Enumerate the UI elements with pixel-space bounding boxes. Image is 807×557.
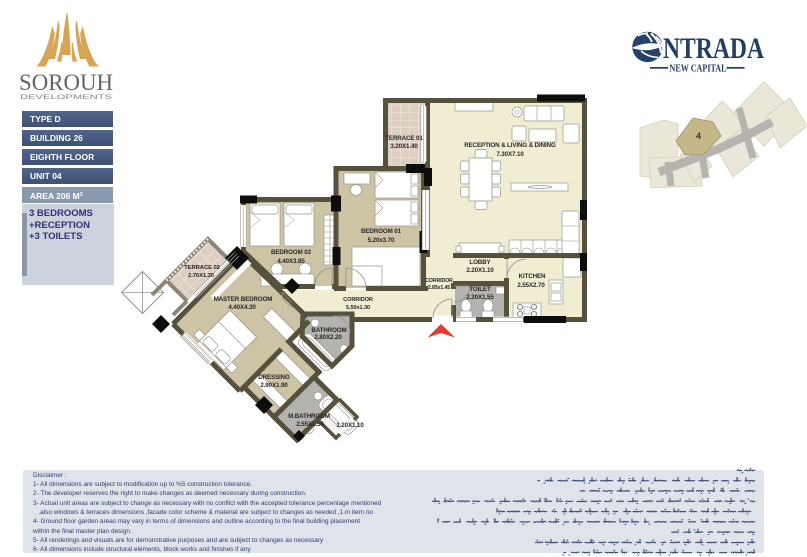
svg-text:TERRACE 01: TERRACE 01 — [385, 135, 423, 142]
svg-text:2.55X2.70: 2.55X2.70 — [517, 282, 545, 289]
svg-text:CORRIDOR: CORRIDOR — [425, 278, 453, 284]
svg-text:BATHROOM: BATHROOM — [311, 327, 346, 334]
svg-text:2.55X1.50: 2.55X1.50 — [296, 421, 324, 428]
svg-text:TOILET: TOILET — [469, 286, 491, 293]
svg-text:CORRIDOR: CORRIDOR — [343, 297, 373, 303]
svg-text:NEW CAPITAL: NEW CAPITAL — [670, 64, 727, 75]
svg-text:4.40X4.30: 4.40X4.30 — [228, 304, 256, 311]
svg-text:2.70X1.30: 2.70X1.30 — [188, 273, 215, 279]
svg-text:4.40X3.85: 4.40X3.85 — [277, 258, 305, 265]
svg-text:TERRACE 02: TERRACE 02 — [184, 265, 220, 271]
svg-text:RECEPTION & LIVING & DINING: RECEPTION & LIVING & DINING — [464, 142, 556, 149]
svg-text:LOBBY: LOBBY — [469, 259, 491, 266]
svg-text:NTRADA: NTRADA — [663, 32, 764, 65]
svg-text:2.20X1.10: 2.20X1.10 — [466, 267, 494, 274]
svg-text:7.30X7.10: 7.30X7.10 — [496, 151, 524, 158]
svg-text:BEDROOM 02: BEDROOM 02 — [271, 249, 312, 256]
svg-text:DRESSING: DRESSING — [258, 374, 290, 381]
svg-text:2.85x1.45: 2.85x1.45 — [428, 285, 450, 291]
svg-text:5.50x1.30: 5.50x1.30 — [346, 305, 370, 311]
svg-text:3.20X1.40: 3.20X1.40 — [390, 143, 418, 150]
svg-text:4: 4 — [696, 131, 701, 141]
svg-text:1.20X1.10: 1.20X1.10 — [336, 422, 364, 429]
svg-text:5.20x3.70: 5.20x3.70 — [368, 237, 395, 244]
svg-text:BEDROOM 01: BEDROOM 01 — [361, 228, 402, 235]
svg-text:KITCHEN: KITCHEN — [519, 273, 546, 280]
svg-text:2.80X2.20: 2.80X2.20 — [314, 334, 342, 341]
svg-text:M.BATHROOM: M.BATHROOM — [288, 413, 330, 420]
svg-text:MASTER BEDROOM: MASTER BEDROOM — [214, 296, 273, 303]
svg-text:2.90X1.90: 2.90X1.90 — [260, 382, 288, 389]
svg-text:2.20X1.55: 2.20X1.55 — [466, 294, 494, 301]
